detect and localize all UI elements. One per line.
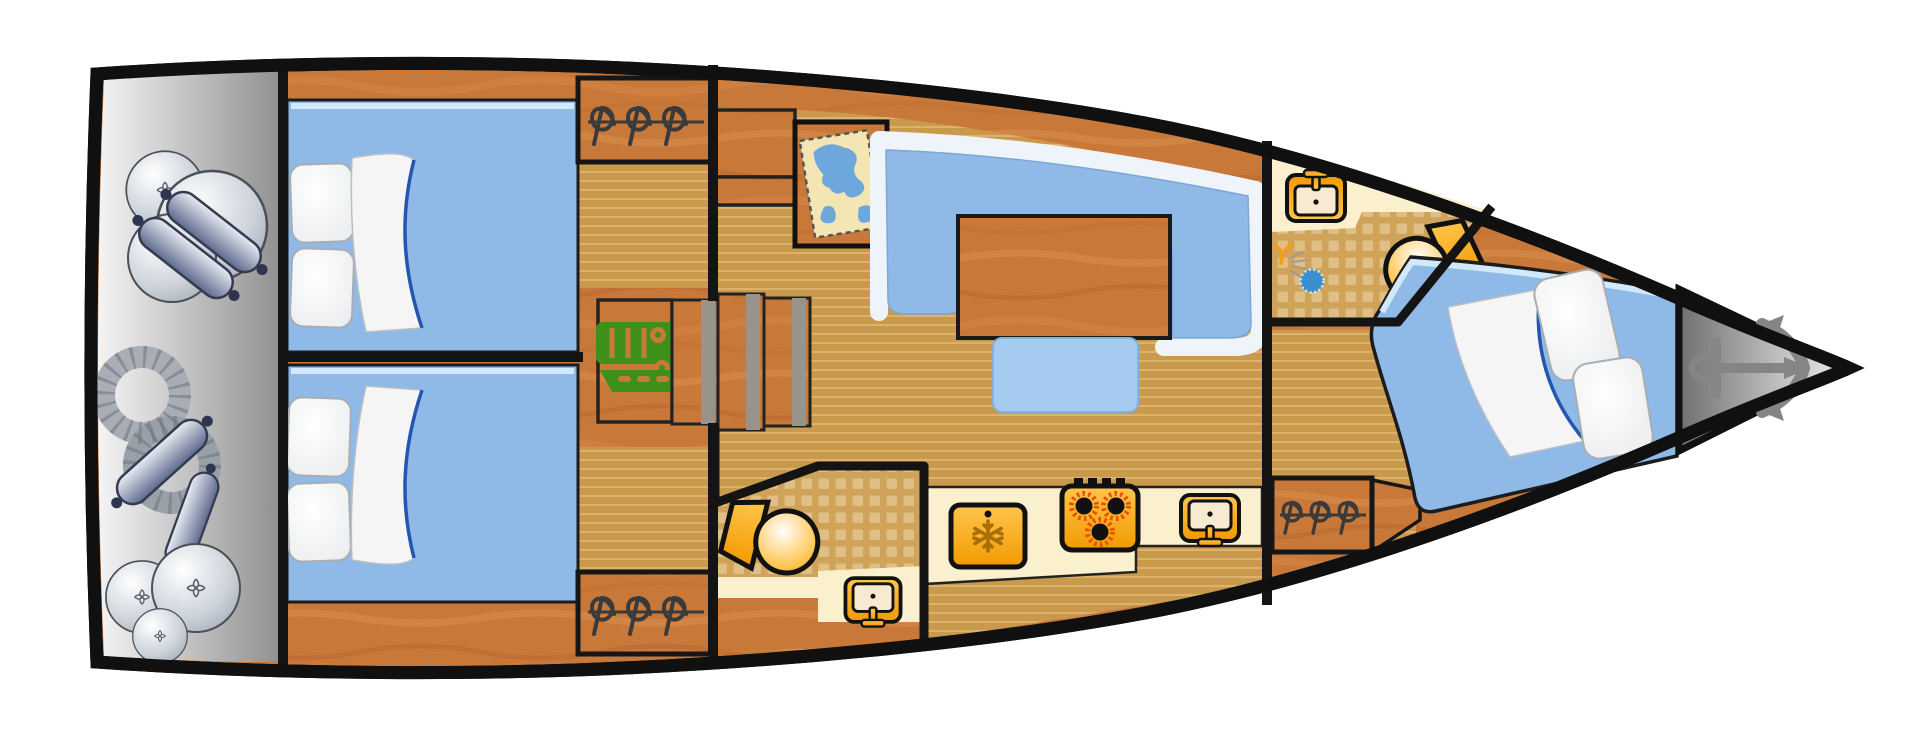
dining-table bbox=[958, 216, 1170, 338]
pillow bbox=[287, 397, 352, 477]
companionway-upper-step bbox=[716, 177, 800, 205]
pillow bbox=[1571, 355, 1655, 461]
stove-icon bbox=[1062, 478, 1138, 550]
bench-seat bbox=[993, 338, 1138, 412]
galley-sink-icon bbox=[1181, 495, 1239, 546]
refrigerator-icon bbox=[951, 505, 1025, 567]
floorplan-canvas bbox=[0, 0, 1920, 737]
pillow bbox=[287, 482, 352, 562]
cabin-floor bbox=[578, 447, 712, 572]
round-fender-icon bbox=[133, 609, 188, 664]
yacht-floorplan bbox=[0, 0, 1920, 737]
companionway-steps bbox=[672, 294, 810, 430]
step-tread bbox=[792, 298, 806, 426]
companionway-upper-step bbox=[716, 110, 795, 177]
washbasin-icon bbox=[845, 578, 900, 626]
washbasin-icon bbox=[1287, 170, 1345, 221]
step-tread bbox=[746, 294, 760, 430]
pillow bbox=[290, 163, 355, 243]
step-tread bbox=[701, 300, 715, 424]
pillow bbox=[290, 248, 355, 328]
cabin-floor bbox=[578, 160, 712, 288]
stern-deck bbox=[98, 69, 283, 663]
